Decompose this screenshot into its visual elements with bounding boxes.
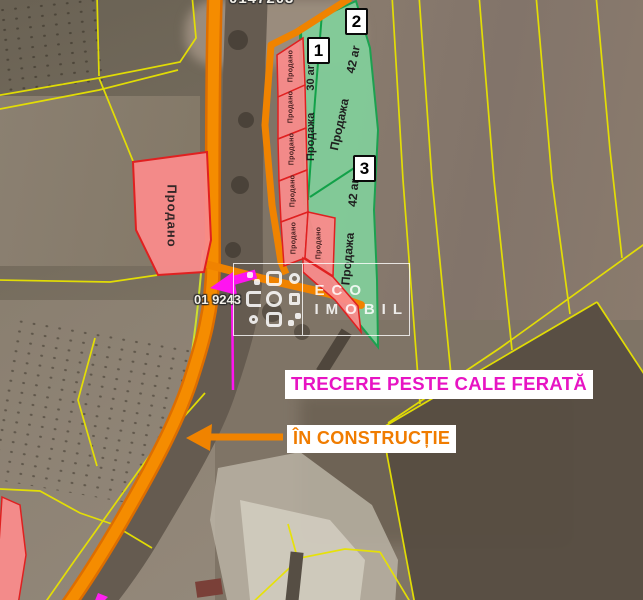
parcel-badge-1: 1 <box>307 37 330 64</box>
map-canvas: 0147203 01 9243 Продано Продано Продано … <box>0 0 643 600</box>
sold-label-cell: Продано <box>288 50 295 82</box>
sale-parcel-1-name: Продажа <box>305 113 317 161</box>
sale-parcel-3-area: 42 ar <box>345 178 361 207</box>
ecoimobil-text: ECO IMOBIL <box>303 264 410 335</box>
watermark-line1: ECO <box>315 281 410 300</box>
cadastral-code-top: 0147203 <box>229 0 294 7</box>
sale-parcel-1-label: Продажа 30 ar <box>305 65 317 161</box>
parcel-badge-3: 3 <box>353 155 376 182</box>
sale-parcel-1-area: 30 ar <box>305 65 317 91</box>
sold-label-cell: Продано <box>289 133 296 165</box>
building-red-roof <box>195 578 223 597</box>
watermark-line2: IMOBIL <box>315 300 410 319</box>
crossing-banner: TRECERE PESTE CALE FERATĂ <box>285 370 593 399</box>
parcel-sold-bottomleft <box>0 497 26 600</box>
sold-label-large: Продано <box>165 184 180 247</box>
construction-banner: ÎN CONSTRUCȚIE <box>287 425 456 453</box>
sold-label-cell: Продано <box>316 227 323 259</box>
ecoimobil-logo <box>234 264 303 335</box>
ecoimobil-watermark: ECO IMOBIL <box>233 263 410 336</box>
sold-label-cell: Продано <box>288 91 295 123</box>
parcel-badge-2: 2 <box>345 8 368 35</box>
sold-label-cell: Продано <box>290 175 297 207</box>
sold-label-cell: Продано <box>291 222 298 254</box>
